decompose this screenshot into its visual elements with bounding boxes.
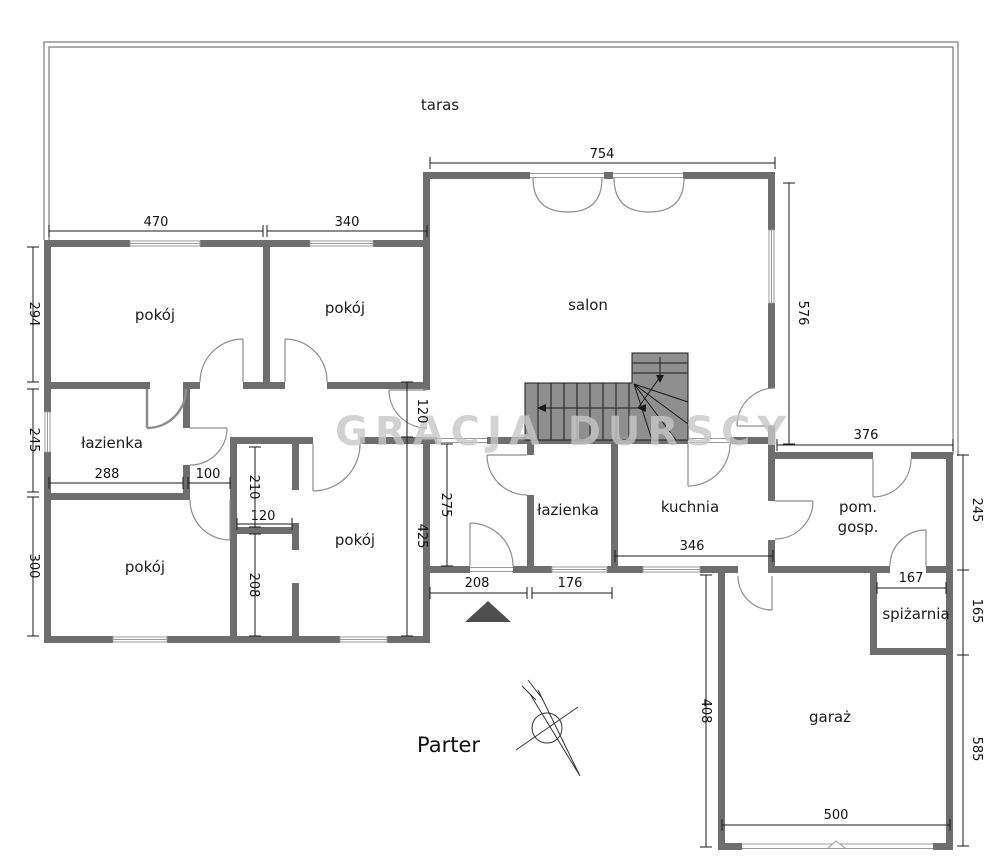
- room-label-lazienka-center: łazienka: [537, 501, 599, 519]
- room-label-spizarnia: spiżarnia: [882, 605, 949, 623]
- walls: [44, 172, 953, 850]
- dim-label-585: 408: [698, 699, 713, 724]
- dimension-lines: [27, 157, 969, 847]
- dim-label-288: 288: [95, 467, 120, 482]
- watermark: GRACJA DURSCY: [335, 409, 793, 455]
- dim-label-167: 167: [899, 571, 924, 586]
- dim-label-425: 425: [414, 524, 429, 549]
- dim-label-210: 210: [246, 475, 261, 500]
- dim-label-346: 346: [680, 539, 705, 554]
- dim-label-100: 100: [196, 467, 221, 482]
- terrace-boundary: [44, 42, 958, 456]
- room-label-pokoj-top-left: pokój: [135, 306, 175, 324]
- dim-label-208-closet: 208: [246, 573, 261, 598]
- floor-plan-page: GRACJA DURSCY 470 340 754 576 294: [0, 0, 996, 863]
- dim-label-376: 376: [854, 428, 879, 443]
- floor-title: Parter: [417, 733, 480, 757]
- room-label-salon: salon: [568, 296, 608, 314]
- dim-label-294: 294: [26, 302, 41, 327]
- dim-label-120-closet: 120: [251, 509, 276, 524]
- dim-label-165: 165: [969, 599, 984, 624]
- dim-label-576: 576: [795, 301, 810, 326]
- room-label-taras: taras: [421, 96, 459, 114]
- room-label-kuchnia: kuchnia: [661, 498, 719, 516]
- windows: [45, 174, 933, 849]
- room-label-pokoj-top-mid: pokój: [325, 299, 365, 317]
- dim-label-245-left: 245: [26, 428, 41, 453]
- dim-label-245-right: 245: [969, 498, 984, 523]
- dim-label-340: 340: [335, 215, 360, 230]
- room-label-garaz: garaż: [809, 708, 851, 726]
- floor-plan-svg: GRACJA DURSCY 470 340 754 576 294: [0, 0, 996, 863]
- room-label-pom-gosp-line2: gosp.: [838, 518, 879, 536]
- dim-label-500: 500: [824, 808, 849, 823]
- north-arrow-icon: [516, 680, 580, 776]
- room-label-pokoj-bottom-mid: pokój: [335, 531, 375, 549]
- dim-label-754: 754: [590, 147, 615, 162]
- dim-label-408: 585: [969, 737, 984, 762]
- dim-label-176: 176: [558, 576, 583, 591]
- room-label-pokoj-bottom-left: pokój: [125, 558, 165, 576]
- dim-label-275: 275: [438, 493, 453, 518]
- dim-label-208-hall: 208: [465, 576, 490, 591]
- room-label-pom-gosp-line1: pom.: [839, 498, 877, 516]
- entrance-marker-icon: [465, 601, 511, 622]
- dim-label-300: 300: [26, 554, 41, 579]
- dim-label-120-door: 120: [414, 399, 429, 424]
- dim-label-470: 470: [144, 215, 169, 230]
- room-label-lazienka-left: łazienka: [81, 434, 143, 452]
